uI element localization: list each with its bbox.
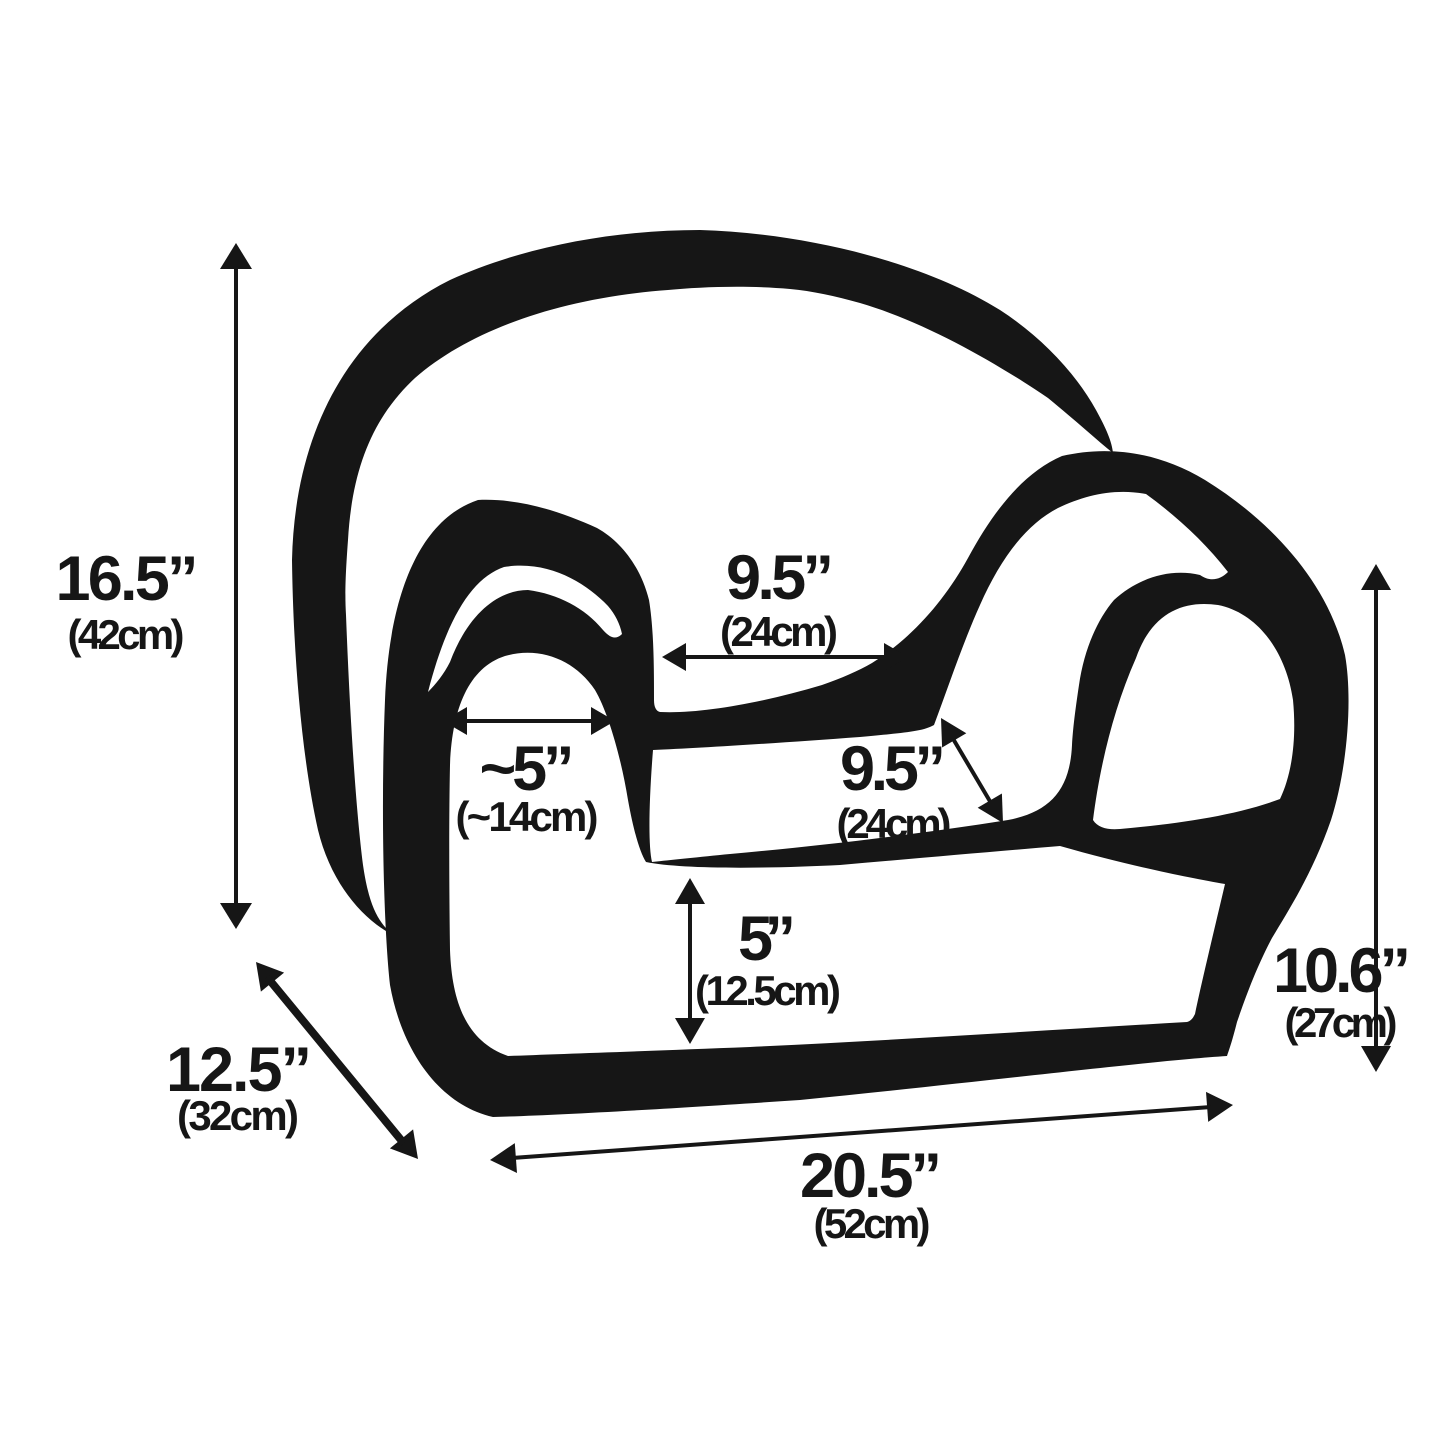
svg-text:(12.5cm): (12.5cm) xyxy=(695,967,841,1014)
svg-text:10.6”: 10.6” xyxy=(1273,936,1411,1006)
svg-text:16.5”: 16.5” xyxy=(56,544,199,614)
svg-text:(52cm): (52cm) xyxy=(814,1200,931,1247)
svg-text:(27cm): (27cm) xyxy=(1285,999,1398,1046)
svg-text:(~14cm): (~14cm) xyxy=(456,793,599,840)
svg-text:5”: 5” xyxy=(738,904,796,974)
svg-text:9.5”: 9.5” xyxy=(840,734,946,804)
svg-text:(24cm): (24cm) xyxy=(837,800,952,847)
svg-text:(32cm): (32cm) xyxy=(177,1092,299,1139)
svg-text:9.5”: 9.5” xyxy=(726,543,834,613)
svg-text:(24cm): (24cm) xyxy=(720,608,838,655)
svg-text:(42cm): (42cm) xyxy=(68,611,185,658)
